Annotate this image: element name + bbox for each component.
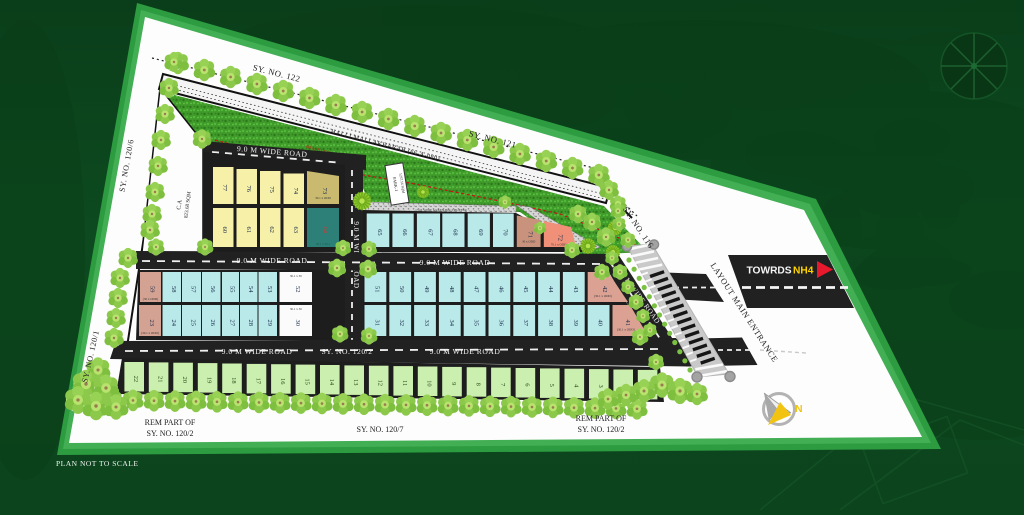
svg-text:30.1 x 30: 30.1 x 30 (290, 307, 302, 311)
svg-text:9: 9 (450, 382, 457, 385)
svg-text:(30.1 x ODD): (30.1 x ODD) (594, 294, 612, 298)
svg-text:64: 64 (321, 226, 328, 233)
svg-text:9.0 M WIDE ROAD: 9.0 M WIDE ROAD (237, 256, 308, 265)
svg-text:65: 65 (376, 229, 383, 236)
svg-text:26: 26 (209, 319, 216, 326)
svg-text:70.1 x ODD: 70.1 x ODD (551, 243, 567, 247)
svg-text:NH4: NH4 (793, 266, 814, 277)
svg-text:44: 44 (547, 286, 554, 293)
svg-text:32: 32 (398, 319, 405, 326)
svg-text:58: 58 (170, 286, 177, 293)
svg-text:51: 51 (373, 286, 380, 293)
svg-text:36: 36 (497, 319, 504, 326)
svg-text:17: 17 (254, 378, 261, 385)
svg-text:15: 15 (303, 378, 310, 385)
svg-text:27: 27 (229, 319, 236, 326)
svg-text:41: 41 (624, 319, 631, 326)
svg-text:30 x ODD: 30 x ODD (522, 239, 536, 243)
svg-text:30.1 x ODD: 30.1 x ODD (315, 196, 331, 200)
svg-text:18: 18 (230, 377, 237, 384)
svg-text:72: 72 (557, 234, 564, 241)
svg-text:61: 61 (245, 226, 252, 233)
svg-text:C.A: C.A (176, 199, 183, 210)
svg-text:20: 20 (181, 376, 188, 383)
svg-text:74: 74 (292, 188, 299, 195)
svg-text:SY. NO. 120/2: SY. NO. 120/2 (321, 347, 372, 356)
svg-text:40: 40 (597, 319, 604, 326)
svg-text:49: 49 (423, 286, 430, 293)
svg-text:60: 60 (221, 226, 228, 233)
svg-text:5: 5 (548, 384, 555, 387)
svg-text:(30.1 x ODD): (30.1 x ODD) (617, 328, 635, 332)
svg-text:45: 45 (522, 286, 529, 293)
svg-text:42: 42 (601, 286, 608, 293)
svg-text:77: 77 (221, 184, 228, 191)
svg-text:SY. NO. 120/2: SY. NO. 120/2 (147, 429, 194, 438)
svg-text:57: 57 (190, 286, 197, 293)
svg-text:PLAN NOT TO SCALE: PLAN NOT TO SCALE (56, 459, 138, 468)
svg-text:16: 16 (279, 378, 286, 385)
svg-text:22: 22 (132, 376, 139, 383)
svg-text:67: 67 (427, 229, 434, 236)
svg-text:70: 70 (501, 229, 508, 236)
svg-text:30: 30 (294, 319, 301, 326)
svg-text:76: 76 (245, 185, 252, 192)
svg-text:9.0 M WIDE ROAD: 9.0 M WIDE ROAD (430, 347, 501, 356)
svg-text:63: 63 (292, 226, 299, 233)
svg-text:11: 11 (401, 380, 408, 386)
svg-text:13: 13 (352, 379, 359, 386)
svg-text:46: 46 (497, 286, 504, 293)
svg-text:52: 52 (294, 286, 301, 293)
svg-text:25: 25 (190, 319, 197, 326)
svg-text:59: 59 (149, 286, 156, 293)
svg-text:SY. NO. 120/7: SY. NO. 120/7 (357, 425, 404, 434)
svg-text:50: 50 (398, 286, 405, 293)
svg-text:48: 48 (448, 286, 455, 293)
svg-text:12: 12 (377, 379, 384, 386)
svg-text:14: 14 (328, 379, 335, 386)
svg-text:23: 23 (148, 319, 155, 326)
svg-text:N: N (795, 403, 803, 415)
svg-text:29: 29 (266, 319, 273, 326)
svg-text:35: 35 (473, 319, 480, 326)
svg-text:9.0 M WIDE ROAD: 9.0 M WIDE ROAD (420, 258, 491, 267)
svg-text:68: 68 (451, 229, 458, 236)
svg-text:62: 62 (268, 226, 275, 233)
svg-text:19: 19 (206, 377, 213, 384)
svg-text:24: 24 (170, 319, 177, 326)
svg-text:33: 33 (423, 319, 430, 326)
svg-text:43: 43 (572, 286, 579, 293)
svg-text:9.0 M WIDE ROAD: 9.0 M WIDE ROAD (222, 347, 293, 356)
svg-text:28: 28 (247, 319, 254, 326)
svg-text:SY. NO. 120/2: SY. NO. 120/2 (578, 425, 625, 434)
svg-text:37: 37 (522, 319, 529, 326)
svg-text:69: 69 (477, 229, 484, 236)
svg-text:10: 10 (426, 380, 433, 387)
svg-text:31: 31 (373, 319, 380, 326)
svg-text:66: 66 (401, 229, 408, 236)
svg-text:REM PART OF: REM PART OF (576, 414, 627, 423)
svg-text:8: 8 (475, 383, 482, 386)
svg-text:73: 73 (321, 188, 328, 195)
svg-text:75: 75 (268, 186, 275, 193)
svg-text:REM PART OF: REM PART OF (145, 418, 196, 427)
svg-text:TOWRDS: TOWRDS (747, 266, 792, 277)
svg-text:34: 34 (448, 319, 455, 326)
svg-text:56: 56 (209, 286, 216, 293)
svg-text:21: 21 (157, 376, 164, 383)
svg-text:53: 53 (266, 286, 273, 293)
svg-text:3: 3 (597, 384, 604, 387)
svg-text:30.1 x 30: 30.1 x 30 (290, 274, 302, 278)
svg-text:38: 38 (547, 319, 554, 326)
svg-text:(30 x ODD): (30 x ODD) (143, 297, 158, 301)
svg-text:39: 39 (572, 319, 579, 326)
svg-text:54: 54 (247, 286, 254, 293)
svg-text:30.1 x 30.1: 30.1 x 30.1 (316, 242, 331, 246)
svg-text:55: 55 (229, 286, 236, 293)
svg-text:(30.1 x ODD): (30.1 x ODD) (141, 331, 159, 335)
svg-text:47: 47 (473, 286, 480, 293)
svg-text:71: 71 (527, 231, 534, 238)
